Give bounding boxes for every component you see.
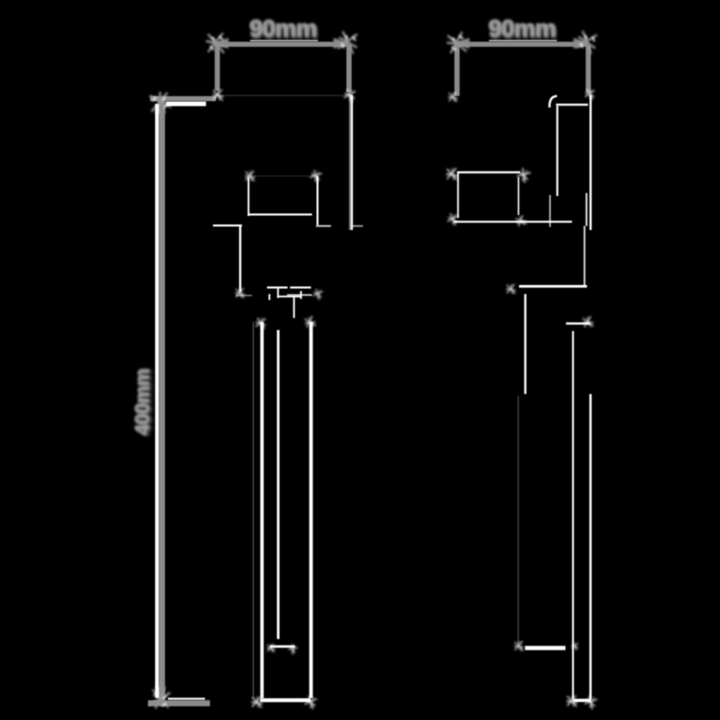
svg-text:90mm: 90mm: [250, 16, 317, 43]
svg-text:400mm: 400mm: [133, 369, 155, 435]
svg-text:90mm: 90mm: [489, 16, 556, 43]
